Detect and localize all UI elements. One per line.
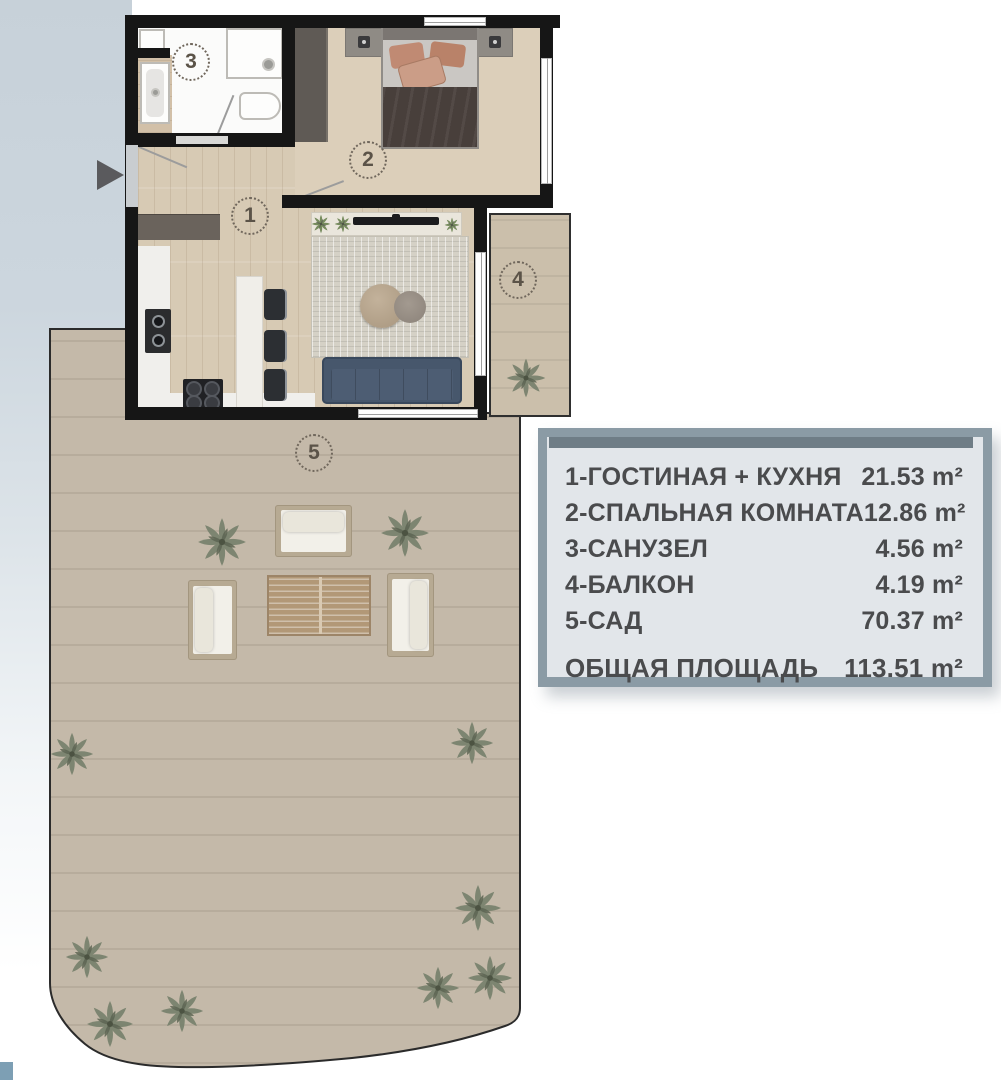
legend-room-label: 5-САД xyxy=(565,603,642,639)
wall-top xyxy=(125,15,560,28)
legend-room-area: 4.19 m² xyxy=(875,567,963,603)
legend-room-label: 4-БАЛКОН xyxy=(565,567,695,603)
bar-stool xyxy=(264,330,285,362)
legend-panel: 1-ГОСТИНАЯ + КУХНЯ 21.53 m² 2-СПАЛЬНАЯ К… xyxy=(538,428,992,687)
legend-total-label: ОБЩАЯ ПЛОЩАДЬ xyxy=(565,650,818,686)
room-label-living: 1 xyxy=(231,197,269,235)
kitchen-sink xyxy=(145,309,171,353)
room-label-bedroom: 2 xyxy=(349,141,387,179)
potted-plant-icon xyxy=(334,215,352,233)
nightstand-left xyxy=(345,28,383,57)
wall-bath-right xyxy=(282,15,295,147)
potted-plant-icon xyxy=(311,214,331,234)
shower xyxy=(226,28,283,79)
wall-left xyxy=(125,15,138,420)
floorplan-canvas: 1 2 3 4 5 1-ГОСТИНАЯ + КУХНЯ 21.53 m² 2-… xyxy=(0,0,1001,1080)
room-number: 5 xyxy=(308,441,320,465)
garden-sofa-top xyxy=(275,505,352,557)
plant-icon xyxy=(196,516,248,568)
kitchen-upper-cabinets xyxy=(138,214,220,240)
plant-icon xyxy=(64,934,110,980)
garden-sofa-right xyxy=(387,573,434,657)
legend-room-area: 12.86 m² xyxy=(864,495,966,531)
nightstand-right xyxy=(477,28,513,57)
bedroom-right-window xyxy=(541,58,552,184)
bathtub xyxy=(140,62,170,124)
washing-machine xyxy=(139,29,165,50)
legend-room-area: 21.53 m² xyxy=(861,459,963,495)
room-number: 4 xyxy=(512,268,524,292)
legend-room-label: 3-САНУЗЕЛ xyxy=(565,531,708,567)
room-label-balcony: 4 xyxy=(499,261,537,299)
legend-top-bar xyxy=(549,437,973,448)
plant-icon xyxy=(449,720,495,766)
double-bed xyxy=(383,28,477,147)
room-number: 2 xyxy=(362,148,374,172)
legend-rows: 1-ГОСТИНАЯ + КУХНЯ 21.53 m² 2-СПАЛЬНАЯ К… xyxy=(547,459,983,686)
legend-row: 2-СПАЛЬНАЯ КОМНАТА 12.86 m² xyxy=(547,495,983,531)
wall-washer-stub xyxy=(125,48,170,58)
legend-room-area: 70.37 m² xyxy=(861,603,963,639)
side-table xyxy=(394,291,426,323)
room-label-bath: 3 xyxy=(172,43,210,81)
legend-room-label: 2-СПАЛЬНАЯ КОМНАТА xyxy=(565,495,864,531)
plant-icon xyxy=(453,883,503,933)
plant-icon xyxy=(466,954,514,1002)
plant-icon xyxy=(159,988,205,1034)
entry-door-sill xyxy=(126,145,138,207)
legend-row: 1-ГОСТИНАЯ + КУХНЯ 21.53 m² xyxy=(547,459,983,495)
plant-icon xyxy=(379,507,431,559)
plant-icon xyxy=(415,965,461,1011)
legend-body: 1-ГОСТИНАЯ + КУХНЯ 21.53 m² 2-СПАЛЬНАЯ К… xyxy=(547,437,983,677)
room-label-garden: 5 xyxy=(295,434,333,472)
garden-sofa-left xyxy=(188,580,237,660)
bedroom-top-window xyxy=(424,17,486,26)
living-right-window xyxy=(475,252,486,376)
terrace-sliding-door xyxy=(358,409,478,418)
kitchen-island xyxy=(236,276,263,411)
legend-room-area: 4.56 m² xyxy=(875,531,963,567)
legend-row: 4-БАЛКОН 4.19 m² xyxy=(547,567,983,603)
legend-row: 5-САД 70.37 m² xyxy=(547,603,983,639)
plant-icon xyxy=(49,731,95,777)
bar-stool xyxy=(264,289,285,320)
toilet xyxy=(239,92,281,120)
plant-icon xyxy=(505,357,547,399)
living-sofa xyxy=(322,357,462,404)
potted-plant-icon xyxy=(444,217,460,233)
bathroom-threshold xyxy=(176,136,228,144)
bar-stool xyxy=(264,369,285,401)
garden-table xyxy=(267,575,371,636)
wall-bedroom-bottom xyxy=(282,195,553,208)
legend-row: 3-САНУЗЕЛ 4.56 m² xyxy=(547,531,983,567)
wardrobe xyxy=(295,26,328,142)
room-number: 1 xyxy=(244,204,256,228)
legend-room-label: 1-ГОСТИНАЯ + КУХНЯ xyxy=(565,459,842,495)
legend-total-value: 113.51 m² xyxy=(844,650,963,686)
entrance-arrow-icon xyxy=(97,160,124,190)
room-number: 3 xyxy=(185,50,197,74)
plant-icon xyxy=(85,999,135,1049)
legend-total-row: ОБЩАЯ ПЛОЩАДЬ 113.51 m² xyxy=(547,650,983,686)
